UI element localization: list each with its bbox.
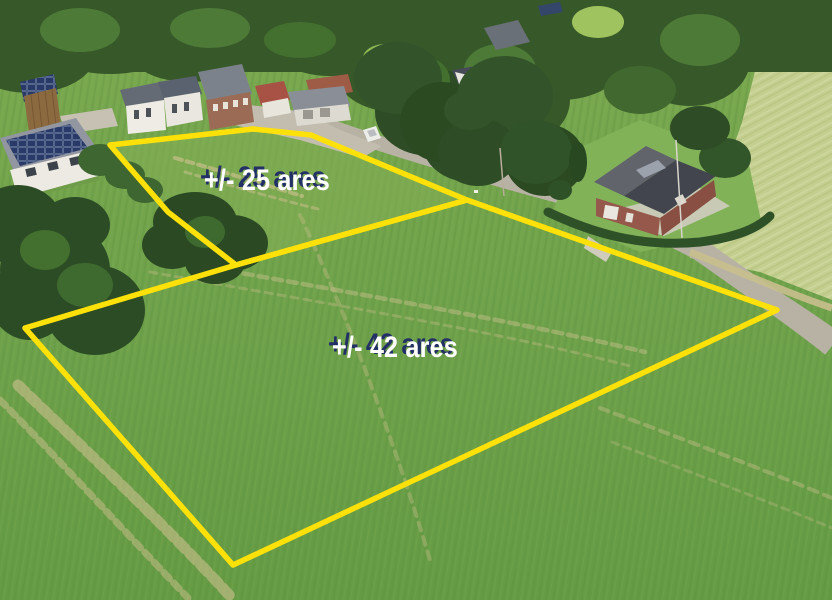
tree-highlight: [170, 8, 250, 48]
brick-house-window: [233, 100, 238, 107]
farmhouse-window: [146, 108, 151, 117]
bush: [548, 180, 572, 200]
farmhouse-window: [184, 102, 189, 111]
tree-highlight: [40, 8, 120, 52]
tree-highlight: [264, 22, 336, 58]
brick-house-window: [223, 102, 228, 109]
tree-highlight: [20, 230, 70, 270]
garage-door: [603, 205, 619, 220]
conifer: [569, 142, 587, 182]
tree-highlight: [660, 14, 740, 66]
brick-house-window: [213, 104, 218, 111]
aerial-photo: +/- 25 ares +/- 25 ares +/- 42 ares +/- …: [0, 0, 832, 600]
tree-highlight: [604, 66, 676, 114]
tree-canopy: [500, 120, 572, 184]
x: [444, 90, 496, 130]
bright-tree: [572, 6, 624, 38]
tree-highlight: [57, 263, 113, 307]
small-plot-label: +/- 25 ares: [204, 164, 330, 197]
farmhouse-window: [172, 104, 177, 113]
brick-house-window: [243, 98, 248, 105]
garage-door: [303, 110, 313, 119]
farmhouse-window: [134, 110, 139, 119]
boundary-marker: [474, 190, 478, 193]
garage-door: [320, 108, 330, 117]
large-plot-label: +/- 42 ares: [332, 331, 458, 364]
aerial-photo-canvas: +/- 25 ares +/- 25 ares +/- 42 ares +/- …: [0, 0, 832, 600]
tree-canopy: [670, 106, 730, 150]
